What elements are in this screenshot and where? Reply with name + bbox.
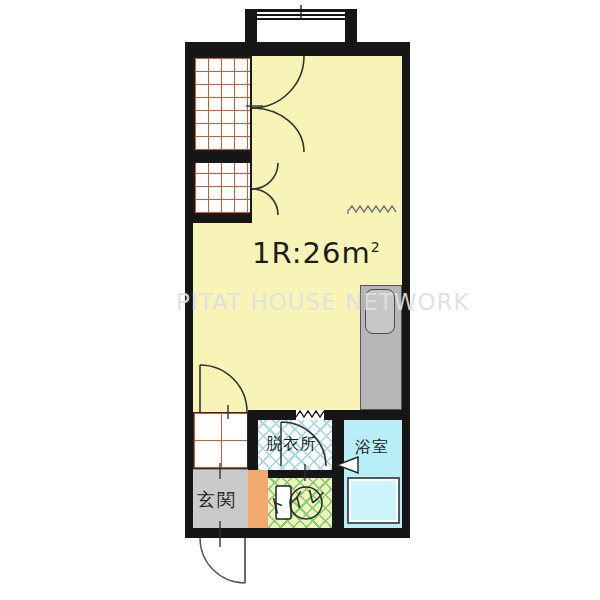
accordion-curtain-zigzag: [296, 411, 324, 417]
closet-lower-door-arc-top: [252, 163, 278, 189]
room-size-text: 1R:26m: [252, 236, 371, 270]
dressing-room-label: 脱衣所: [266, 434, 317, 455]
room-size-label: 1R:26m2: [252, 236, 381, 270]
room-door-arc: [200, 365, 247, 412]
room-size-superscript: 2: [371, 239, 381, 255]
closet-upper-door-arc-bottom: [252, 108, 304, 152]
closet-upper-door-arc-top: [252, 56, 304, 108]
closet-lower-door-arc-bottom: [252, 189, 278, 215]
entry-door-arc: [200, 538, 245, 583]
floorplan-canvas: 1R:26m2 玄関 脱衣所 浴室 トイレ PITAT HOUSE NETWOR…: [0, 0, 600, 600]
watermark-text: PITAT HOUSE NETWORK: [176, 289, 470, 315]
wall-break-zigzag: [348, 206, 396, 214]
bath-door-triangle: [337, 457, 358, 473]
bathroom-label: 浴室: [355, 437, 389, 458]
entrance-label: 玄関: [197, 488, 237, 512]
